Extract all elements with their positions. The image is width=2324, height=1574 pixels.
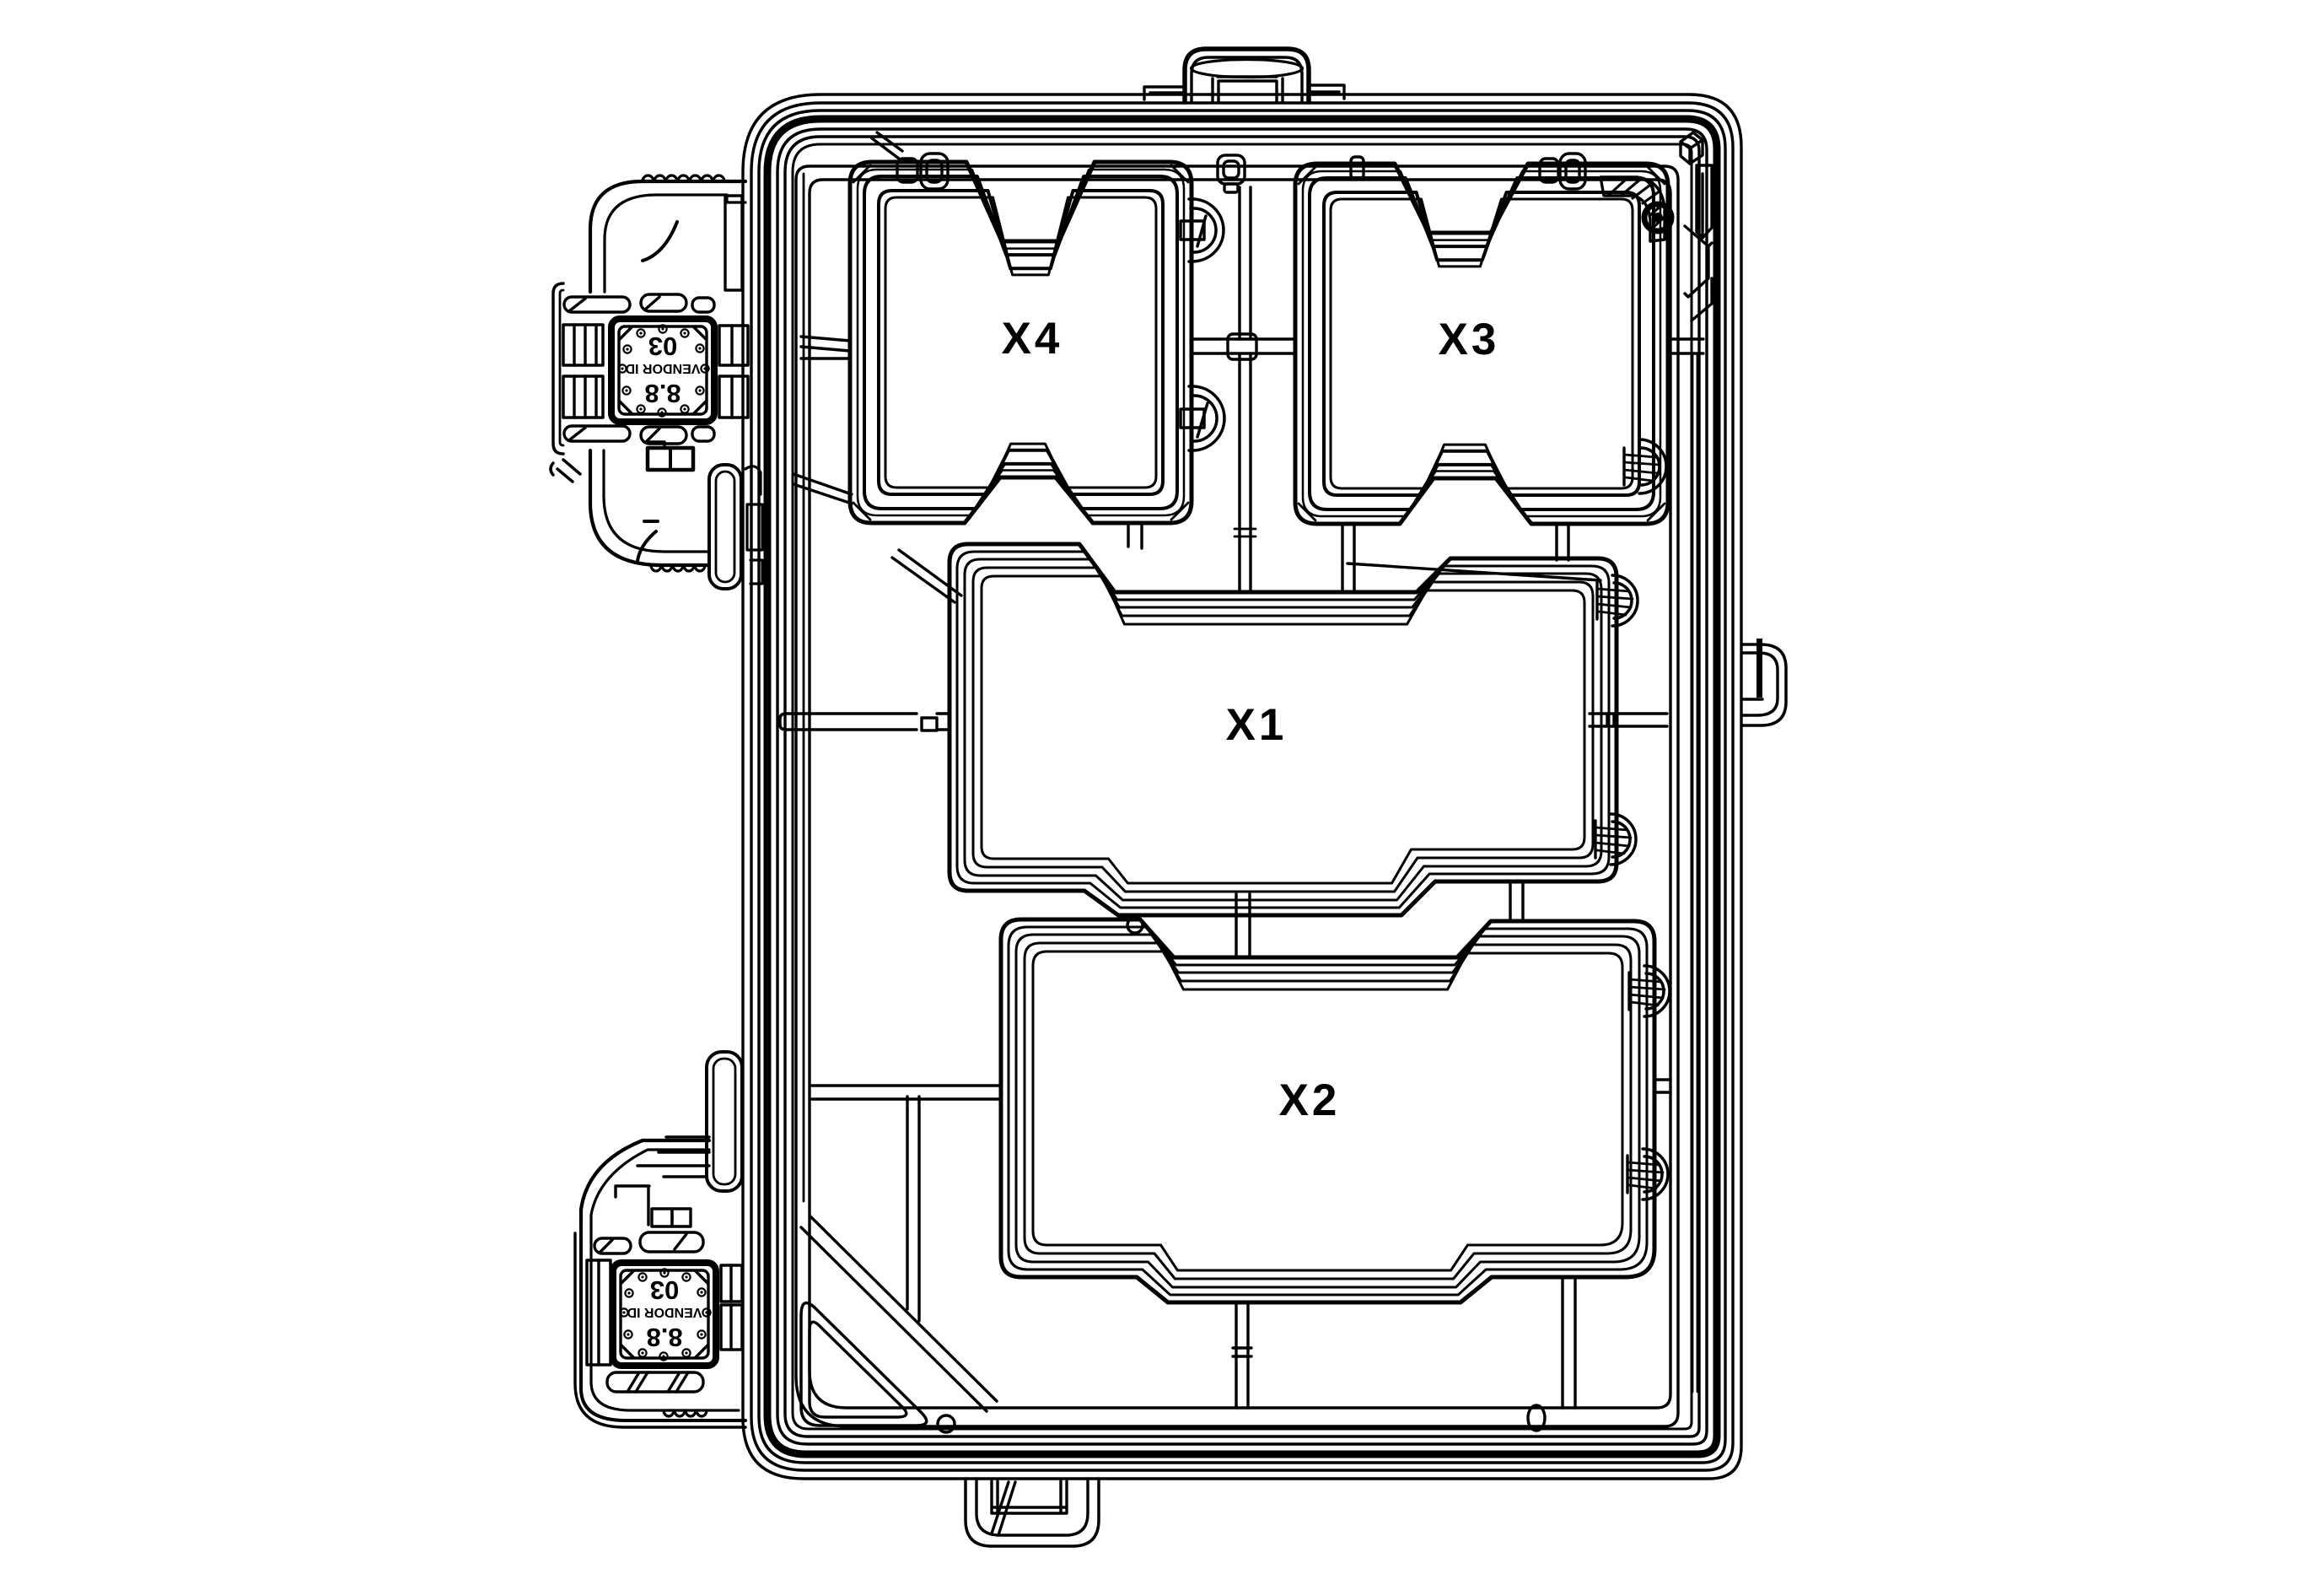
svg-text:X1: X1 (1226, 700, 1288, 750)
svg-text:X3: X3 (1439, 315, 1500, 364)
svg-text:X4: X4 (1002, 314, 1063, 364)
svg-text:X2: X2 (1279, 1075, 1341, 1125)
